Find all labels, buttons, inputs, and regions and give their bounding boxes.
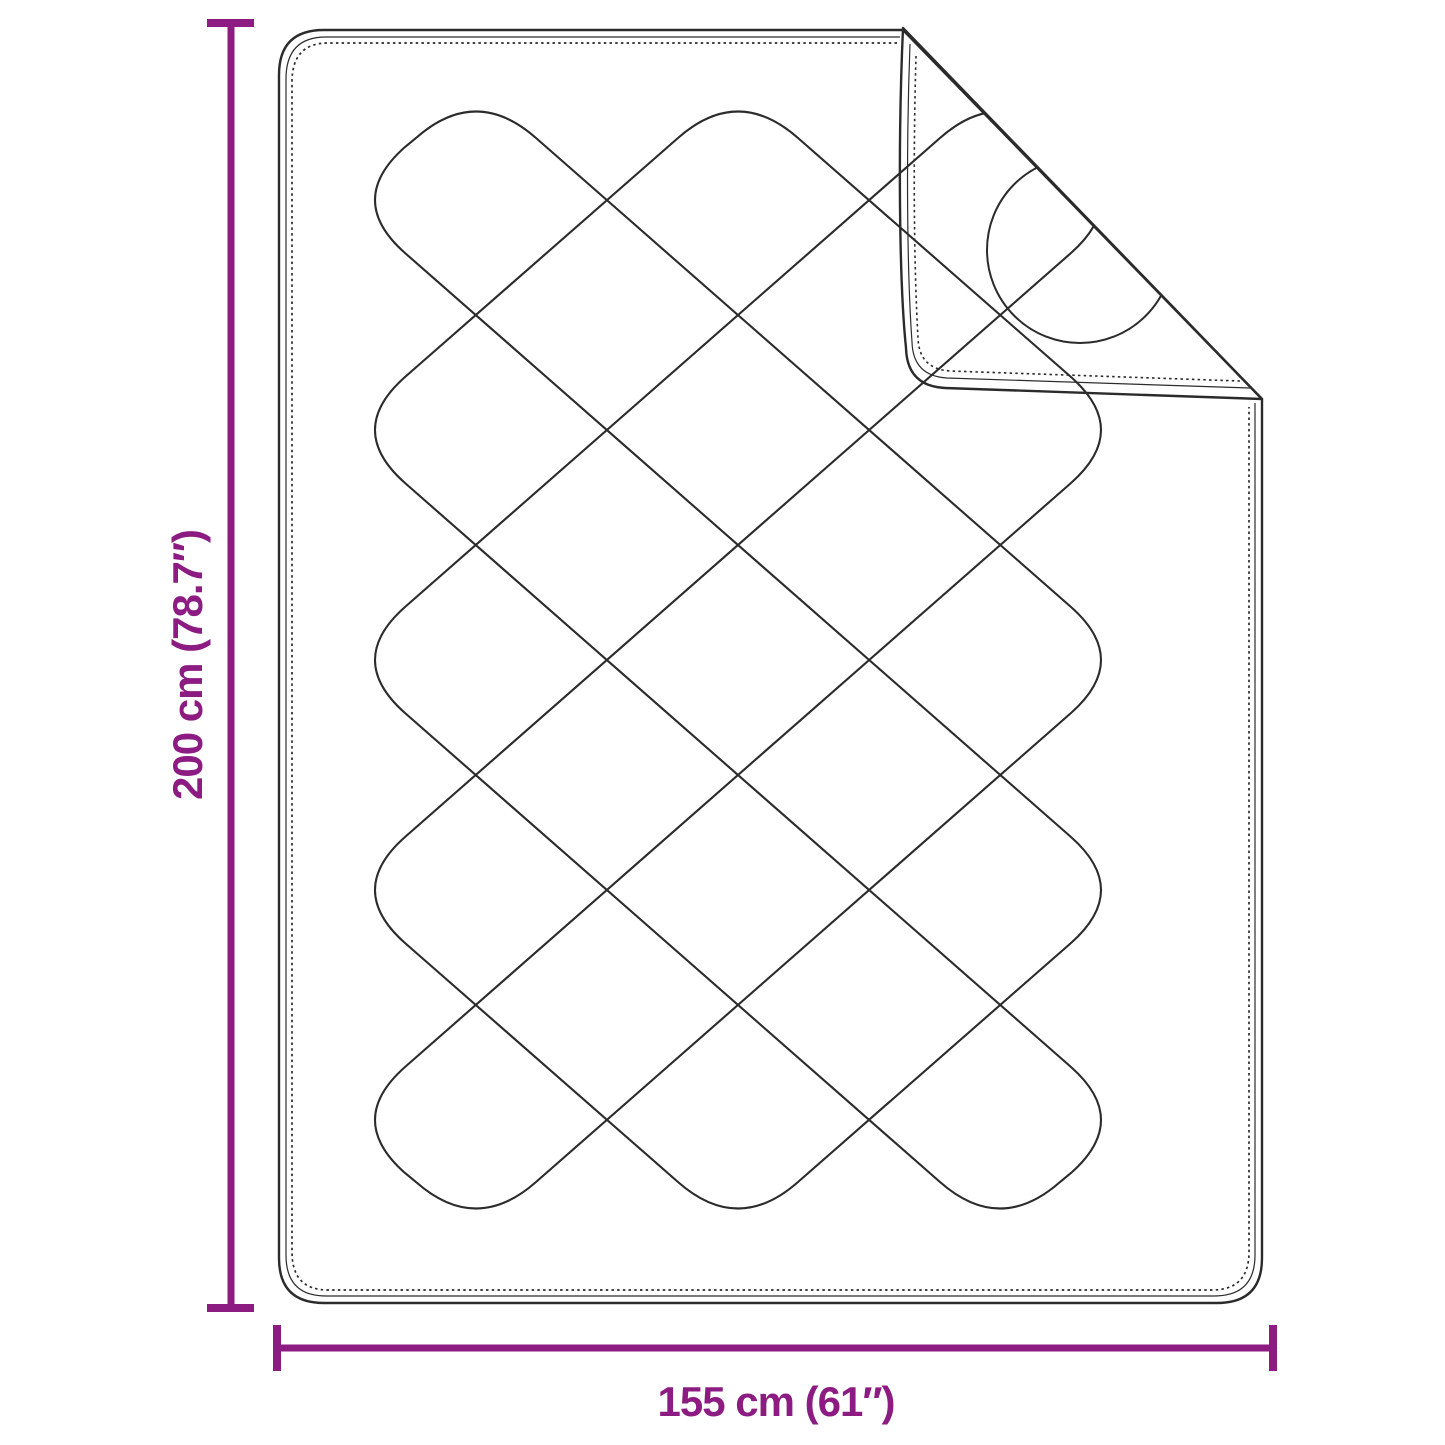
blanket-drawing <box>0 0 1445 1445</box>
width-dimension-line <box>277 1325 1273 1371</box>
dimension-diagram: 200 cm (78.7″) 155 cm (61″) <box>0 0 1445 1445</box>
folded-corner-inner-edge-line <box>908 44 1250 388</box>
quilt-stitch-pattern <box>375 112 1101 1209</box>
height-dimension-label: 200 cm (78.7″) <box>164 530 212 800</box>
blanket-outline <box>279 30 1262 1303</box>
width-dimension-label: 155 cm (61″) <box>658 1378 895 1426</box>
corner-stitch-circle <box>987 157 1173 343</box>
folded-corner-stitch-border <box>914 56 1240 381</box>
blanket-inner-edge-line <box>286 37 1255 1296</box>
blanket-stitch-border <box>292 43 1249 1290</box>
height-dimension-line <box>207 23 254 1308</box>
